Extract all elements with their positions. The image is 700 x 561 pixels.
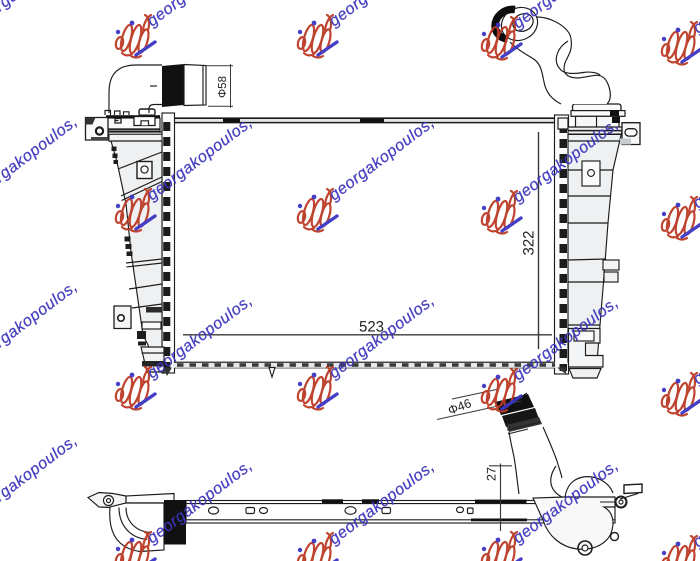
svg-text:27: 27: [485, 467, 499, 481]
svg-text:322: 322: [521, 230, 538, 255]
svg-text:Φ58: Φ58: [217, 76, 229, 98]
